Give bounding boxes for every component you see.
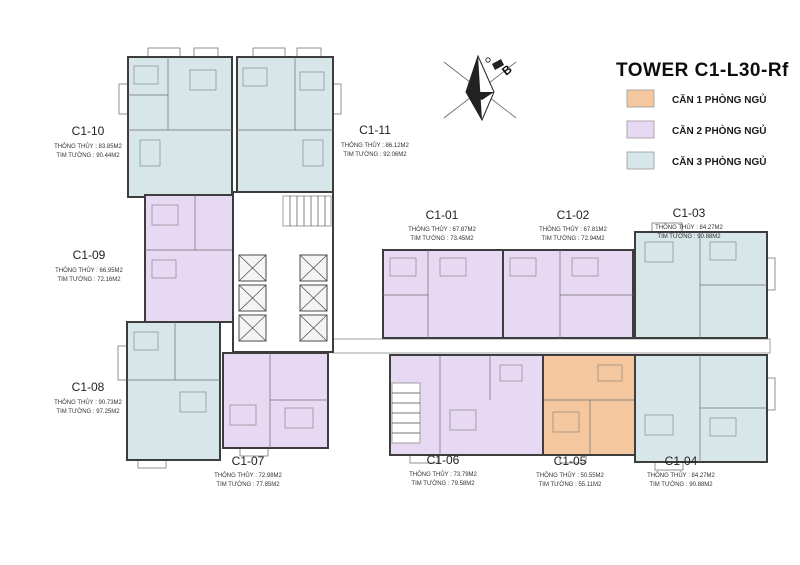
unit-gross-area: TIM TƯỜNG : 72.16M2 xyxy=(57,276,121,283)
unit-net-area: THÔNG THỦY : 86.12M2 xyxy=(341,142,409,149)
north-compass-icon: B xyxy=(444,56,516,120)
unit-id: C1-11 xyxy=(359,123,391,137)
unit-id: C1-10 xyxy=(72,124,105,138)
unit-C1-07 xyxy=(223,353,328,448)
floor-plan-canvas: TOWER C1-L30-Rf CĂN 1 PHÒNG NGỦ CĂN 2 PH… xyxy=(0,0,800,565)
page-title: TOWER C1-L30-Rf xyxy=(616,60,789,81)
unit-net-area: THÔNG THỦY : 50.55M2 xyxy=(536,472,604,479)
unit-C1-10 xyxy=(128,57,232,197)
unit-net-area: THÔNG THỦY : 83.85M2 xyxy=(54,143,122,150)
unit-label-C1-02: C1-02 THÔNG THỦY : 67.81M2 TIM TƯỜNG : 7… xyxy=(539,208,607,242)
unit-net-area: THÔNG THỦY : 67.87M2 xyxy=(408,226,476,233)
legend-swatch-1br-icon xyxy=(627,90,654,107)
unit-gross-area: TIM TƯỜNG : 55.11M2 xyxy=(539,481,602,488)
unit-label-C1-09: C1-09 THÔNG THỦY : 66.95M2 TIM TƯỜNG : 7… xyxy=(55,248,123,283)
unit-gross-area: TIM TƯỜNG : 97.25M2 xyxy=(56,408,120,415)
unit-shape-C1-09 xyxy=(145,195,233,322)
unit-C1-01 xyxy=(383,250,503,338)
unit-gross-area: TIM TƯỜNG : 79.58M2 xyxy=(411,480,475,487)
unit-C1-06 xyxy=(390,355,543,455)
unit-id: C1-07 xyxy=(232,454,265,468)
unit-C1-05 xyxy=(543,355,635,455)
corridor xyxy=(333,339,770,353)
unit-C1-08 xyxy=(127,322,220,460)
unit-shape-C1-01 xyxy=(383,250,503,338)
core xyxy=(233,192,333,352)
unit-id: C1-03 xyxy=(673,206,706,220)
unit-label-C1-01: C1-01 THÔNG THỦY : 67.87M2 TIM TƯỜNG : 7… xyxy=(408,208,476,242)
unit-gross-area: TIM TƯỜNG : 72.94M2 xyxy=(541,235,605,242)
unit-gross-area: TIM TƯỜNG : 90.88M2 xyxy=(657,233,721,240)
unit-id: C1-01 xyxy=(426,208,459,222)
unit-net-area: THÔNG THỦY : 90.73M2 xyxy=(54,399,122,406)
unit-shape-C1-08 xyxy=(127,322,220,460)
unit-gross-area: TIM TƯỜNG : 90.44M2 xyxy=(56,152,120,159)
unit-id: C1-05 xyxy=(554,454,587,468)
unit-C1-11 xyxy=(237,57,333,197)
unit-shape-C1-05 xyxy=(543,355,635,455)
legend-label-3br: CĂN 3 PHÒNG NGỦ xyxy=(672,155,766,168)
unit-shape-C1-04 xyxy=(635,355,767,462)
unit-gross-area: TIM TƯỜNG : 77.85M2 xyxy=(216,481,280,488)
unit-id: C1-06 xyxy=(427,453,460,467)
unit-C1-02 xyxy=(503,250,633,338)
unit-label-C1-07: C1-07 THÔNG THỦY : 72.98M2 TIM TƯỜNG : 7… xyxy=(214,454,282,488)
unit-id: C1-02 xyxy=(557,208,590,222)
unit-shape-C1-02 xyxy=(503,250,633,338)
unit-C1-09 xyxy=(145,195,233,322)
unit-net-area: THÔNG THỦY : 67.81M2 xyxy=(539,226,607,233)
unit-gross-area: TIM TƯỜNG : 92.06M2 xyxy=(343,151,407,158)
unit-net-area: THÔNG THỦY : 73.79M2 xyxy=(409,471,477,478)
unit-C1-04 xyxy=(635,355,767,462)
unit-net-area: THÔNG THỦY : 66.95M2 xyxy=(55,267,123,274)
legend-swatch-2br-icon xyxy=(627,121,654,138)
unit-id: C1-08 xyxy=(72,380,105,394)
unit-label-C1-11: C1-11 THÔNG THỦY : 86.12M2 TIM TƯỜNG : 9… xyxy=(341,123,409,158)
unit-gross-area: TIM TƯỜNG : 90.88M2 xyxy=(649,481,713,488)
unit-gross-area: TIM TƯỜNG : 73.45M2 xyxy=(410,235,474,242)
unit-shape-C1-07 xyxy=(223,353,328,448)
legend: CĂN 1 PHÒNG NGỦ CĂN 2 PHÒNG NGỦ CĂN 3 PH… xyxy=(627,90,766,169)
unit-net-area: THÔNG THỦY : 72.98M2 xyxy=(214,472,282,479)
unit-label-C1-08: C1-08 THÔNG THỦY : 90.73M2 TIM TƯỜNG : 9… xyxy=(54,380,122,415)
legend-label-1br: CĂN 1 PHÒNG NGỦ xyxy=(672,93,766,106)
legend-swatch-3br-icon xyxy=(627,152,654,169)
unit-label-C1-10: C1-10 THÔNG THỦY : 83.85M2 TIM TƯỜNG : 9… xyxy=(54,124,122,159)
unit-shape-C1-11 xyxy=(237,57,333,197)
legend-label-2br: CĂN 2 PHÒNG NGỦ xyxy=(672,124,766,137)
unit-shape-C1-10 xyxy=(128,57,232,197)
unit-id: C1-04 xyxy=(665,454,698,468)
unit-net-area: THÔNG THỦY : 84.27M2 xyxy=(655,224,723,231)
unit-C1-03 xyxy=(635,232,767,338)
unit-id: C1-09 xyxy=(73,248,106,262)
unit-label-C1-05: C1-05 THÔNG THỦY : 50.55M2 TIM TƯỜNG : 5… xyxy=(536,454,604,488)
unit-net-area: THÔNG THỦY : 84.27M2 xyxy=(647,472,715,479)
